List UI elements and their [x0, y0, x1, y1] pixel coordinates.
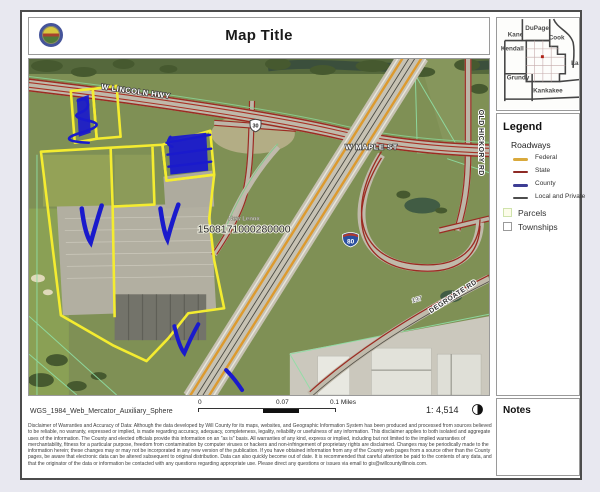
- county-locator-inset: DuPage Kane Cook Kendall Lake Grundy Kan…: [496, 17, 580, 111]
- state-line-swatch: [513, 171, 528, 173]
- us-30-shield-label: 30: [252, 123, 258, 129]
- local-line-swatch: [513, 197, 528, 199]
- print-layout-page: Map Title: [20, 10, 582, 480]
- scale-mid-label: 0.07: [276, 399, 289, 406]
- location-marker: [541, 55, 544, 58]
- parcel-number-label: 1508171000280000: [198, 224, 291, 235]
- scale-ratio-label: 1: 4,514: [426, 405, 459, 415]
- legend-item-label: Federal: [535, 154, 557, 161]
- township-label: New Lenox: [228, 217, 260, 223]
- map-canvas: 30 80 W LINCOLN HWY W MAPLE ST OLD HICKO…: [29, 59, 489, 395]
- legend-item-label: Townships: [518, 222, 558, 232]
- map-footer: WGS_1984_Web_Mercator_Auxiliary_Sphere 0…: [28, 398, 490, 422]
- legend-item-label: Parcels: [518, 208, 546, 218]
- scale-start-label: 0: [198, 399, 202, 406]
- county-label: DuPage: [525, 25, 549, 32]
- notes-panel: Notes: [496, 398, 580, 476]
- county-label: Cook: [549, 35, 565, 42]
- county-label: Lake: [571, 60, 579, 67]
- us-30-shield-icon: 30: [250, 119, 261, 131]
- legend-item-label: State: [535, 167, 550, 174]
- townships-swatch: [503, 222, 512, 231]
- county-line-swatch: [513, 184, 528, 187]
- legend-item-label: County: [535, 180, 556, 187]
- scale-bar-segment: [263, 409, 299, 413]
- interstate-80-shield-label: 80: [347, 238, 355, 245]
- scale-tick: [335, 408, 336, 412]
- page-title: Map Title: [29, 27, 489, 44]
- scale-tick: [198, 408, 199, 412]
- map-frame: 30 80 W LINCOLN HWY W MAPLE ST OLD HICKO…: [28, 58, 490, 396]
- county-label: Kankakee: [533, 87, 563, 94]
- disclaimer-text: Disclaimer of Warranties and Accuracy of…: [28, 423, 492, 479]
- parcels-swatch: [503, 208, 512, 217]
- north-arrow-icon: [472, 404, 483, 415]
- scale-bar: 0 0.07 0.1 Miles: [198, 399, 346, 417]
- federal-line-swatch: [513, 158, 528, 161]
- notes-title: Notes: [503, 405, 531, 416]
- scale-end-label: 0.1 Miles: [330, 399, 356, 406]
- projection-label: WGS_1984_Web_Mercator_Auxiliary_Sphere: [30, 408, 173, 415]
- legend-panel: Legend Roadways Federal State County Loc…: [496, 113, 580, 396]
- legend-group-roadways: Roadways: [511, 140, 551, 150]
- county-label: Grundy: [507, 75, 530, 82]
- legend-item-label: Local and Private: [535, 193, 585, 200]
- maple-st-label: W MAPLE ST: [345, 143, 398, 152]
- old-hickory-rd-label: OLD HICKORY RD: [477, 110, 484, 176]
- county-label: Kane: [508, 32, 524, 39]
- title-bar: Map Title: [28, 17, 490, 55]
- legend-title: Legend: [503, 121, 542, 133]
- locator-map: DuPage Kane Cook Kendall Lake Grundy Kan…: [497, 18, 579, 110]
- county-label: Kendall: [501, 45, 524, 52]
